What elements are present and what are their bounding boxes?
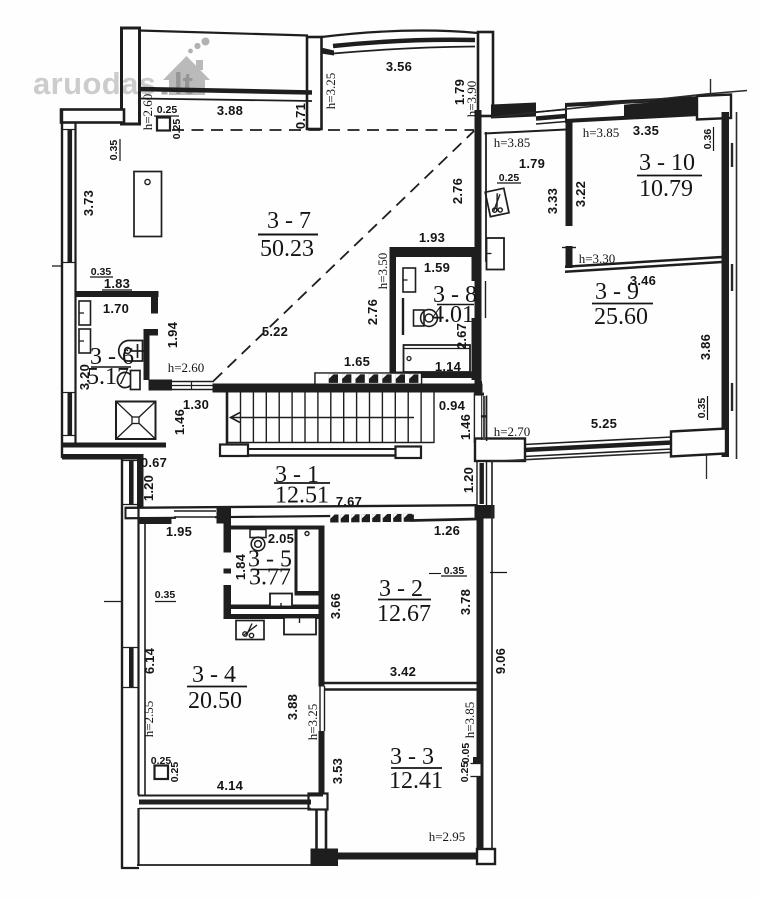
- svg-text:3 - 7: 3 - 7: [267, 208, 311, 234]
- svg-text:3 - 3: 3 - 3: [390, 744, 434, 770]
- svg-text:1.79: 1.79: [519, 156, 545, 171]
- svg-text:h=2.60: h=2.60: [140, 94, 155, 131]
- svg-text:h=2.95: h=2.95: [429, 829, 466, 844]
- svg-text:12.67: 12.67: [377, 601, 431, 627]
- svg-text:1.84: 1.84: [233, 553, 248, 580]
- svg-text:1.46: 1.46: [458, 414, 473, 440]
- svg-text:0.05: 0.05: [460, 743, 472, 764]
- svg-text:0.35: 0.35: [444, 565, 465, 577]
- svg-text:aruodas: aruodas: [33, 66, 156, 101]
- svg-text:10.79: 10.79: [639, 176, 693, 202]
- svg-text:25.60: 25.60: [594, 304, 648, 330]
- svg-text:7.67: 7.67: [336, 494, 362, 509]
- svg-text:h=2.70: h=2.70: [494, 424, 531, 439]
- svg-text:1.20: 1.20: [461, 467, 476, 493]
- svg-text:lt: lt: [174, 66, 193, 101]
- svg-text:12.51: 12.51: [275, 483, 329, 509]
- svg-text:h=2.60: h=2.60: [168, 360, 205, 375]
- svg-text:0.35: 0.35: [696, 398, 708, 419]
- svg-text:0.35: 0.35: [155, 589, 176, 601]
- svg-text:h=3.25: h=3.25: [323, 73, 338, 110]
- svg-text:5.25: 5.25: [591, 416, 617, 431]
- svg-text:3.66: 3.66: [328, 593, 343, 619]
- svg-text:3.46: 3.46: [630, 273, 656, 288]
- svg-text:h=3.85: h=3.85: [583, 125, 620, 140]
- svg-text:9.06: 9.06: [493, 648, 508, 674]
- svg-text:1.14: 1.14: [435, 359, 462, 374]
- svg-text:1.83: 1.83: [104, 276, 130, 291]
- svg-text:0.25: 0.25: [459, 762, 471, 783]
- svg-text:5.22: 5.22: [262, 324, 288, 339]
- svg-text:3.88: 3.88: [217, 103, 243, 118]
- svg-text:3.56: 3.56: [386, 59, 412, 74]
- svg-text:h=3.25: h=3.25: [305, 704, 320, 741]
- svg-text:1.70: 1.70: [103, 301, 129, 316]
- svg-text:0.25: 0.25: [499, 172, 520, 184]
- svg-text:0.25: 0.25: [171, 119, 183, 140]
- svg-text:3.42: 3.42: [390, 664, 416, 679]
- svg-text:2.76: 2.76: [365, 299, 380, 325]
- svg-text:1.26: 1.26: [434, 523, 460, 538]
- svg-text:0.35: 0.35: [108, 140, 120, 161]
- svg-text:0.71: 0.71: [293, 103, 308, 129]
- svg-text:3.33: 3.33: [545, 188, 560, 214]
- svg-text:50.23: 50.23: [260, 236, 314, 262]
- svg-text:0.36: 0.36: [702, 129, 714, 150]
- svg-text:h=3.85: h=3.85: [494, 135, 531, 150]
- svg-text:h=2.55: h=2.55: [141, 701, 156, 738]
- svg-text:3.35: 3.35: [633, 123, 659, 138]
- svg-text:0.25: 0.25: [169, 762, 181, 783]
- svg-text:2.76: 2.76: [450, 178, 465, 204]
- svg-text:2.67: 2.67: [454, 323, 469, 349]
- svg-text:2.05: 2.05: [268, 531, 294, 546]
- svg-text:1.65: 1.65: [344, 354, 370, 369]
- svg-text:20.50: 20.50: [188, 688, 242, 714]
- svg-text:3.77: 3.77: [249, 565, 291, 591]
- svg-text:3.86: 3.86: [698, 334, 713, 360]
- svg-text:3.53: 3.53: [330, 758, 345, 784]
- svg-text:12.41: 12.41: [389, 768, 443, 794]
- svg-text:3 - 4: 3 - 4: [192, 662, 236, 688]
- svg-text:3 - 2: 3 - 2: [379, 576, 423, 602]
- svg-text:0.25: 0.25: [157, 104, 178, 116]
- svg-text:1.46: 1.46: [172, 409, 187, 435]
- svg-text:6.14: 6.14: [142, 647, 157, 674]
- svg-text:1.95: 1.95: [166, 524, 192, 539]
- svg-text:0.94: 0.94: [439, 398, 466, 413]
- svg-text:h=3.90: h=3.90: [464, 81, 479, 118]
- svg-text:3.88: 3.88: [285, 694, 300, 720]
- svg-text:1.94: 1.94: [165, 321, 180, 348]
- svg-text:1.59: 1.59: [424, 260, 450, 275]
- svg-text:3.73: 3.73: [81, 190, 96, 216]
- svg-text:3.22: 3.22: [573, 181, 588, 207]
- svg-text:1.20: 1.20: [141, 475, 156, 501]
- svg-text:3 - 10: 3 - 10: [639, 150, 695, 176]
- svg-text:4.14: 4.14: [217, 778, 244, 793]
- svg-text:h=3.50: h=3.50: [375, 253, 390, 290]
- svg-text:5.17: 5.17: [87, 364, 129, 390]
- svg-text:3.78: 3.78: [458, 589, 473, 615]
- svg-text:0.67: 0.67: [141, 455, 167, 470]
- svg-text:h=3.30: h=3.30: [579, 251, 616, 266]
- svg-text:h=3.85: h=3.85: [462, 702, 477, 739]
- svg-text:3.20: 3.20: [77, 364, 92, 390]
- svg-text:1.93: 1.93: [419, 230, 445, 245]
